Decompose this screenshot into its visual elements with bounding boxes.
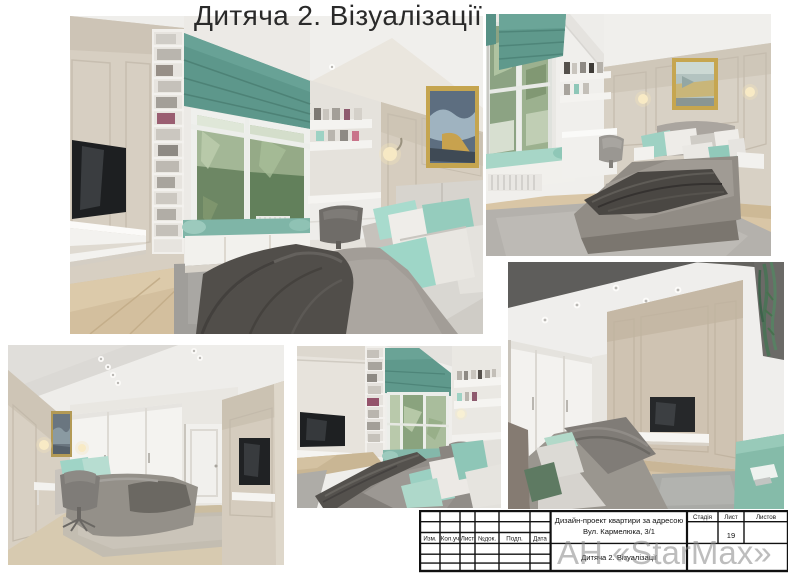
svg-text:Подп.: Подп. — [506, 536, 523, 543]
svg-text:№док.: №док. — [478, 536, 496, 543]
svg-text:Стадія: Стадія — [693, 514, 712, 521]
svg-text:Дата: Дата — [533, 536, 547, 543]
svg-text:Кол.уч: Кол.уч — [441, 536, 460, 543]
svg-text:Дизайн-проект квартири за адре: Дизайн-проект квартири за адресою — [555, 516, 684, 525]
svg-text:Изм.: Изм. — [423, 536, 437, 543]
svg-text:Листов: Листов — [756, 514, 777, 521]
svg-text:Лист: Лист — [724, 514, 738, 521]
svg-text:Лист: Лист — [461, 536, 475, 543]
